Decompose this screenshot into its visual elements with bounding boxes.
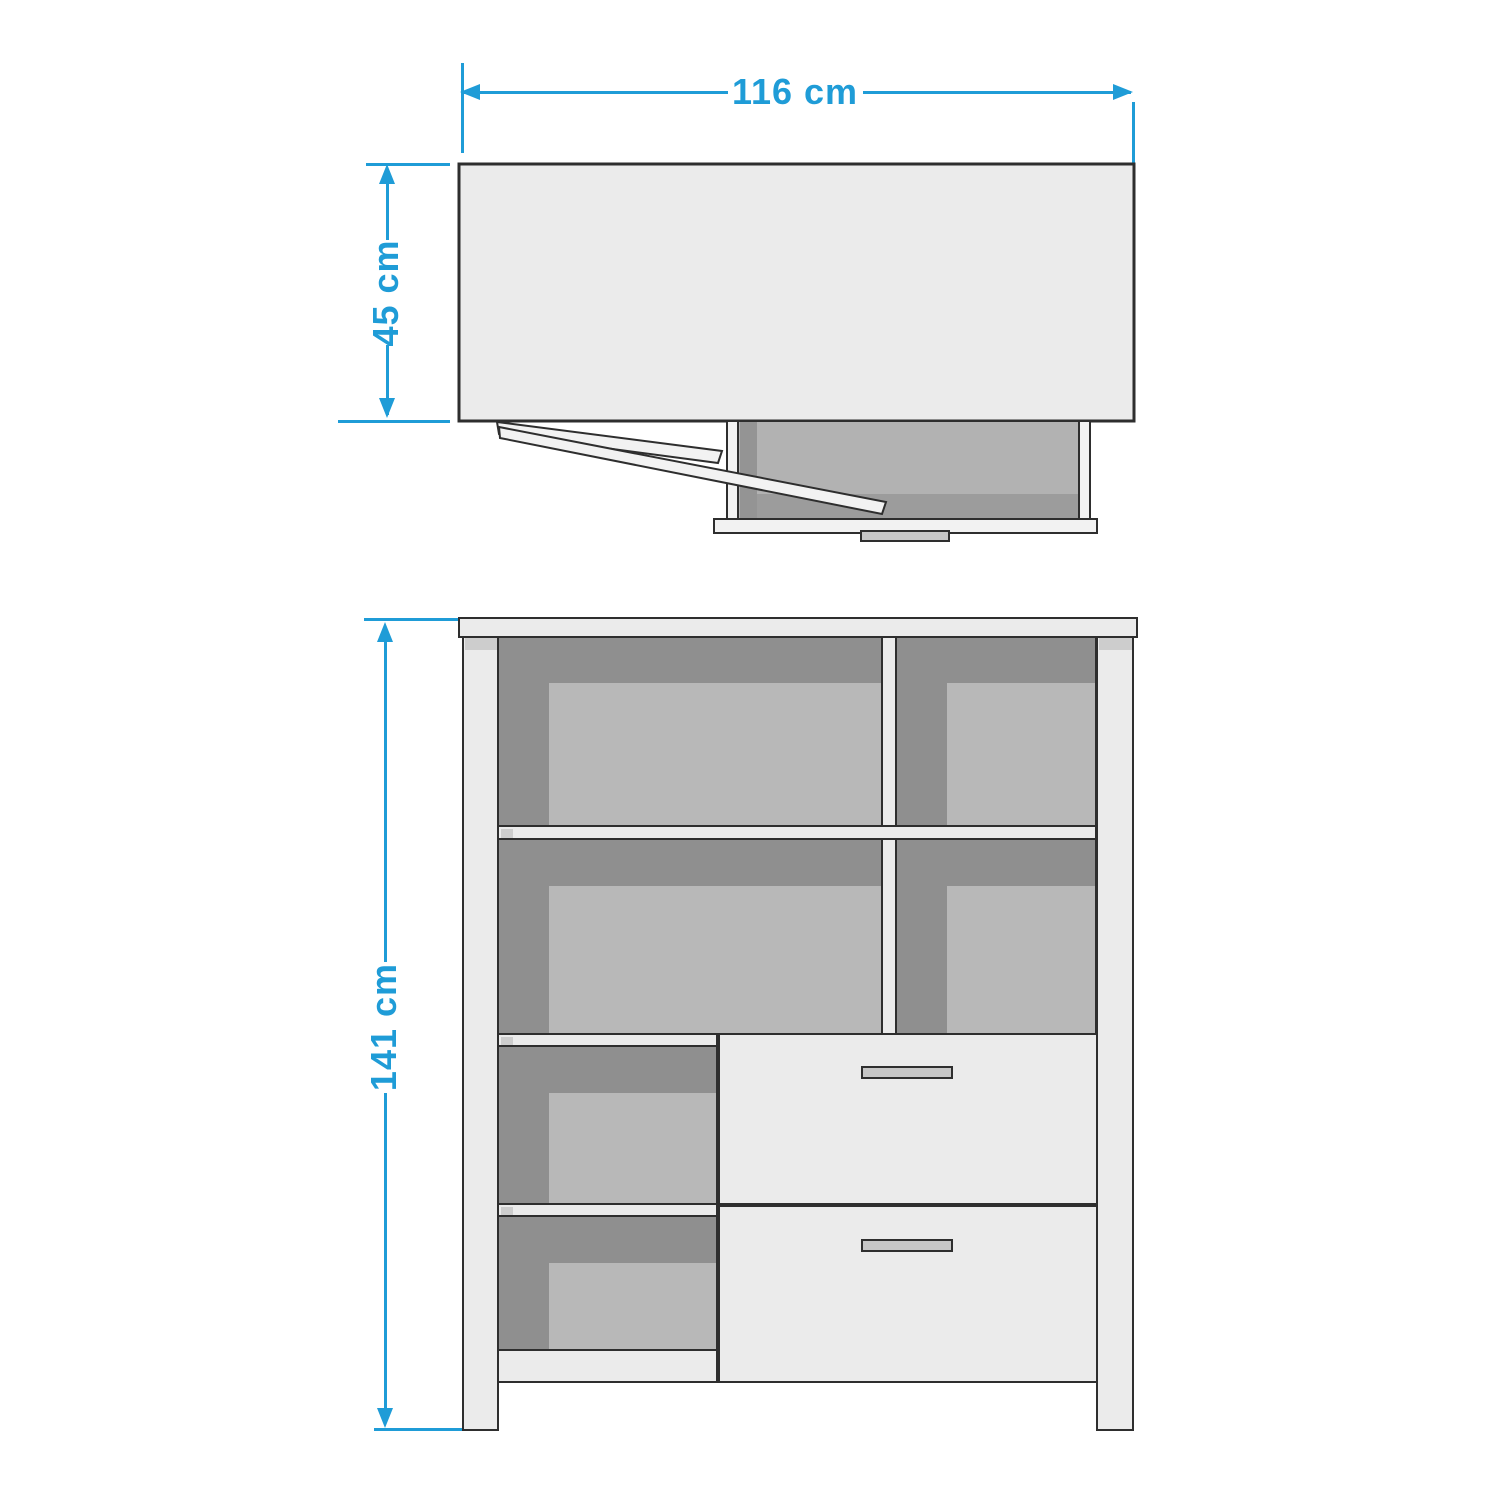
side-panel-left	[462, 636, 499, 1431]
side-panel-right	[1096, 636, 1134, 1431]
compartment-lower-left-2	[497, 1215, 718, 1351]
front-view: 141 cm	[0, 560, 1500, 1500]
arrowhead-right-icon	[1113, 84, 1133, 100]
top-panel-plan	[459, 164, 1134, 421]
cabinet-top-panel	[458, 617, 1138, 638]
shelf-end-cap	[501, 1207, 513, 1215]
compartment-back-panel	[549, 886, 881, 1033]
side-panel-cap-left	[465, 638, 497, 650]
width-dimension-label: 116 cm	[715, 73, 875, 111]
base-rail-left	[497, 1349, 718, 1383]
compartment-mid-left	[497, 838, 883, 1035]
height-dimension-line-top	[384, 632, 387, 962]
drawer-handle-plan	[861, 531, 949, 541]
drawer-handle-lower	[861, 1239, 953, 1252]
side-panel-cap-right	[1099, 638, 1132, 650]
compartment-lower-left-1	[497, 1045, 718, 1205]
drawer-interior-left-shade	[740, 422, 757, 520]
arrowhead-left-icon	[460, 84, 480, 100]
depth-dimension-label: 45 cm	[367, 213, 405, 373]
drawer-handle-upper	[861, 1066, 953, 1079]
height-dimension-label: 141 cm	[365, 942, 403, 1112]
compartment-top-left	[497, 635, 883, 827]
shelf-end-cap	[501, 1037, 513, 1045]
drawer-side-right-plan	[1079, 421, 1090, 521]
shelf-end-cap	[501, 829, 513, 838]
arrowhead-up-icon	[379, 164, 395, 184]
compartment-back-panel	[549, 1093, 716, 1203]
top-view: 116 cm 45 cm	[0, 0, 1500, 560]
compartment-back-panel	[947, 886, 1095, 1033]
compartment-back-panel	[947, 683, 1095, 825]
furniture-dimension-diagram: 116 cm 45 cm	[0, 0, 1500, 1500]
width-dimension-line-left	[462, 91, 728, 94]
compartment-mid-right	[895, 838, 1097, 1035]
arrowhead-down-icon	[377, 1408, 393, 1428]
compartment-back-panel	[549, 1263, 716, 1349]
height-extension-line-bottom	[374, 1428, 462, 1431]
height-extension-line-top	[364, 618, 458, 621]
compartment-back-panel	[549, 683, 881, 825]
width-extension-line-left	[461, 63, 464, 153]
drawer-front-upper	[718, 1033, 1098, 1205]
arrowhead-down-icon	[379, 398, 395, 418]
top-view-drawing	[430, 145, 1160, 545]
compartment-top-right	[895, 635, 1097, 827]
height-dimension-line-bottom	[384, 1093, 387, 1423]
width-dimension-line-right	[863, 91, 1131, 94]
drawer-front-lower	[718, 1205, 1098, 1383]
arrowhead-up-icon	[377, 622, 393, 642]
